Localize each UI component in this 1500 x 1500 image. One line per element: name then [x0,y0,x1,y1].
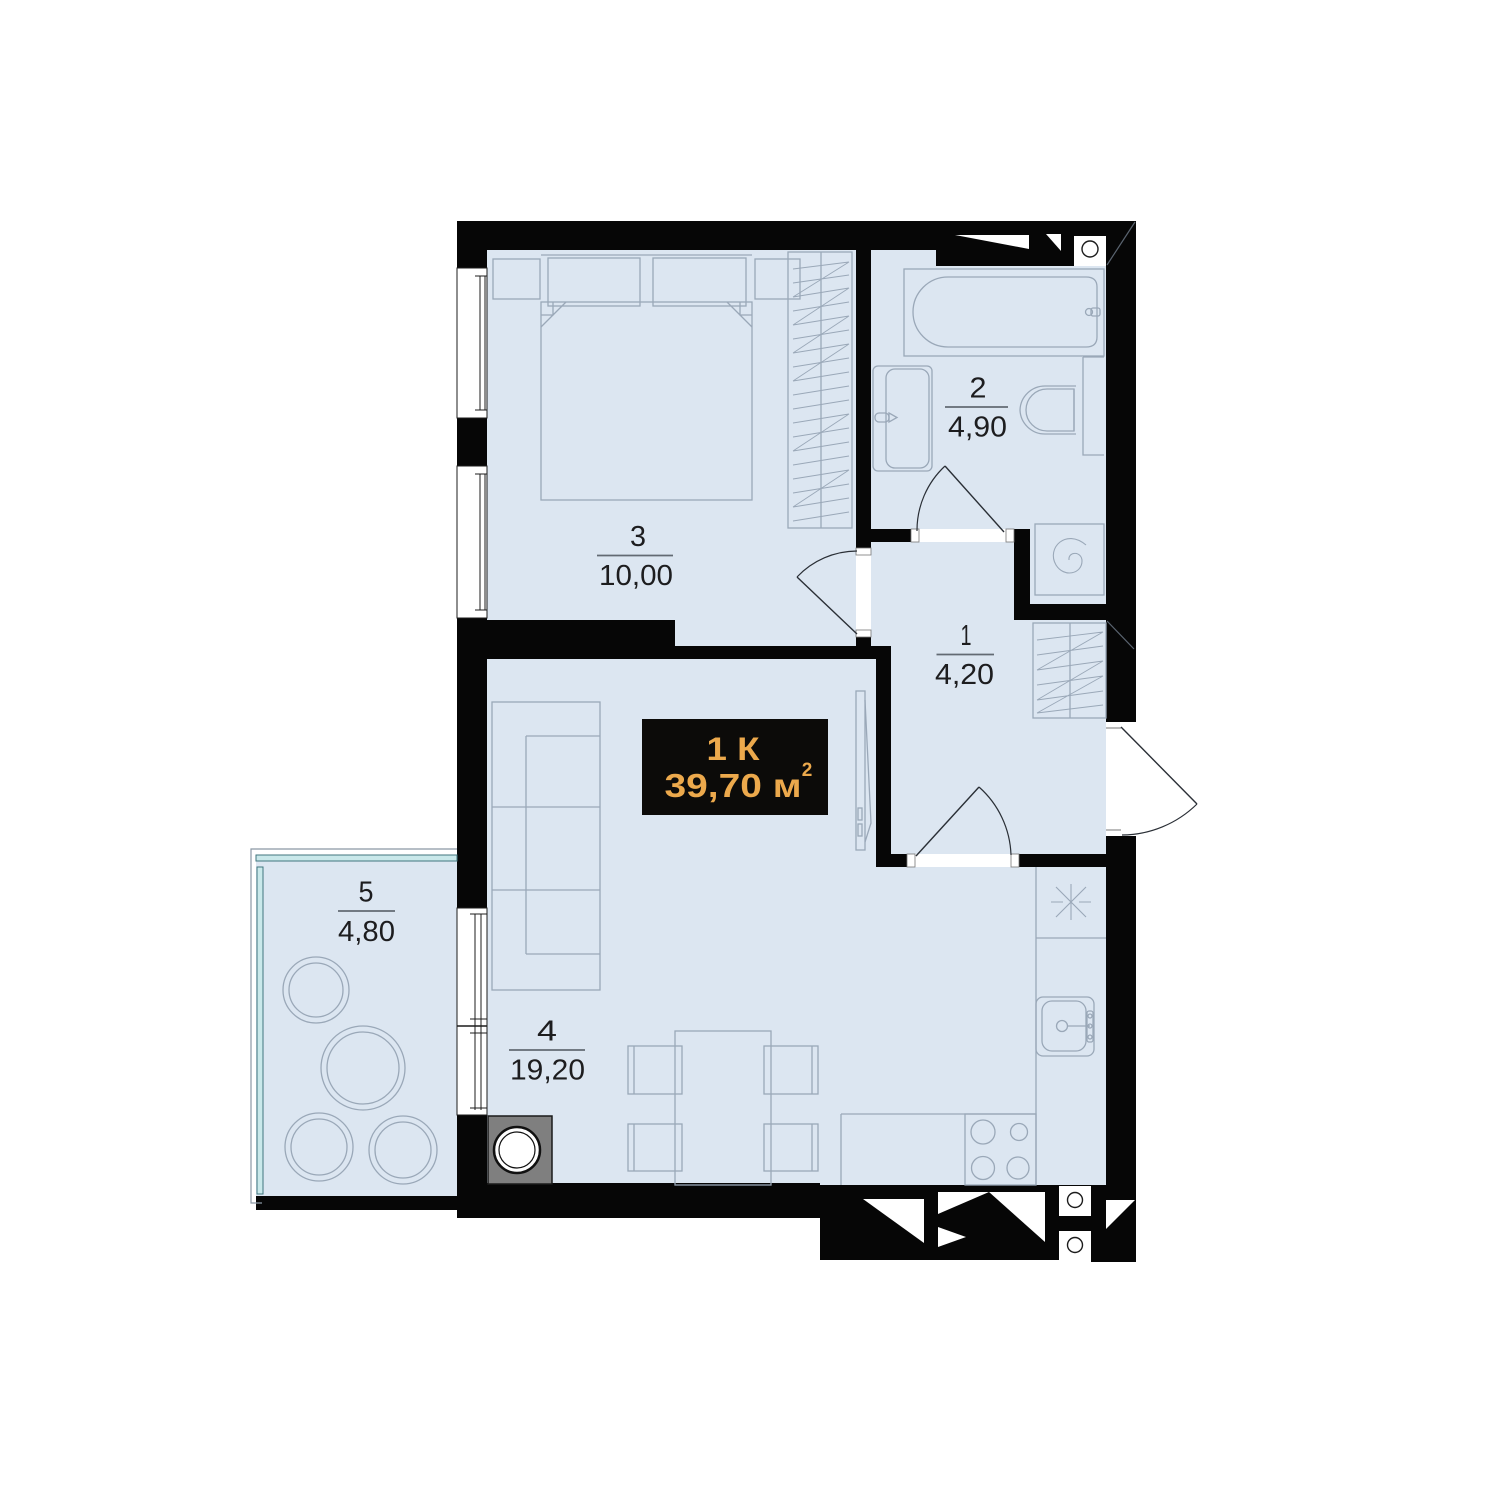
svg-text:19,20: 19,20 [510,1055,585,1087]
svg-text:10,00: 10,00 [599,560,673,592]
svg-text:2: 2 [802,760,813,781]
svg-text:4,20: 4,20 [935,659,994,691]
svg-text:1: 1 [961,620,972,652]
svg-text:4: 4 [537,1016,557,1048]
svg-text:4,90: 4,90 [948,412,1007,444]
svg-text:5: 5 [359,877,374,909]
svg-text:1 К: 1 К [707,731,761,767]
svg-text:4,80: 4,80 [338,916,395,948]
svg-text:3: 3 [630,521,646,553]
svg-text:2: 2 [970,373,987,405]
svg-text:39,70 м: 39,70 м [665,767,802,804]
